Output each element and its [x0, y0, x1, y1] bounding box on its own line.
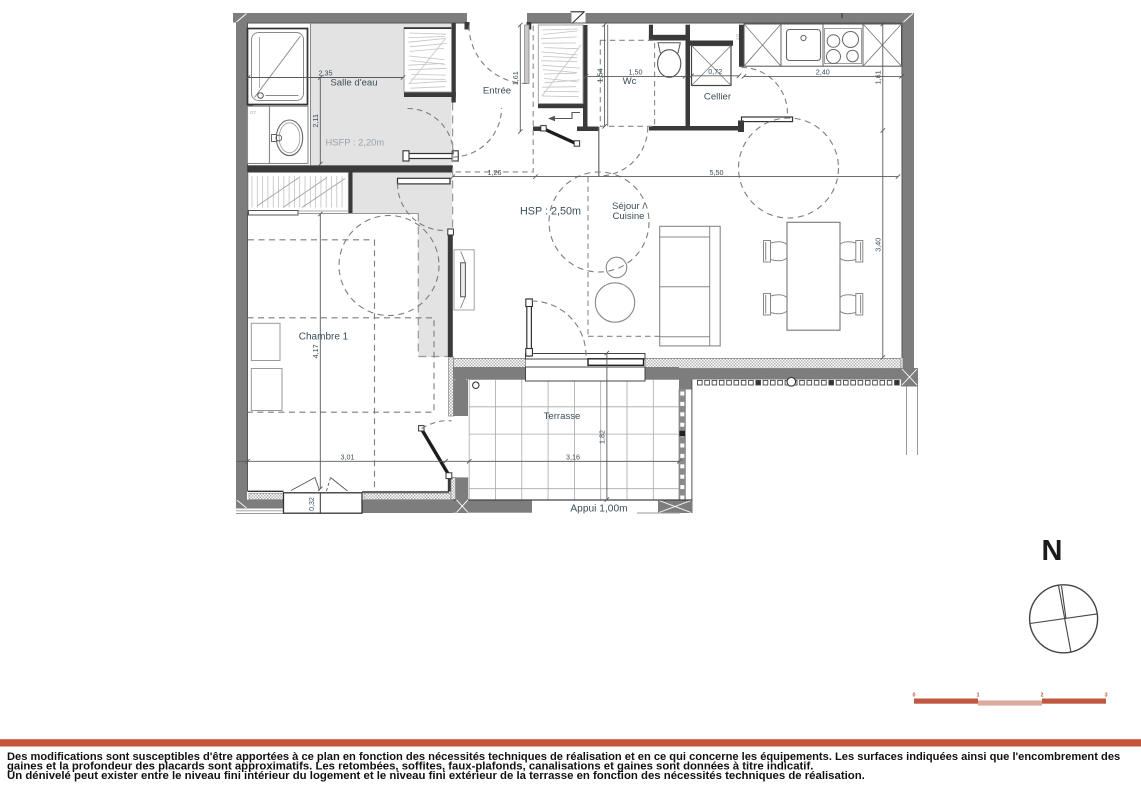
svg-text:2,11: 2,11	[311, 114, 320, 127]
svg-text:1: 1	[976, 693, 979, 699]
svg-text:HSFP : 2,20m: HSFP : 2,20m	[326, 137, 385, 148]
svg-text:1,26: 1,26	[488, 168, 502, 177]
svg-text:0,32: 0,32	[309, 497, 316, 511]
svg-text:GT: GT	[735, 34, 740, 41]
svg-text:2,35: 2,35	[319, 69, 333, 78]
svg-text:Wc: Wc	[623, 76, 637, 87]
svg-text:0,72: 0,72	[708, 67, 722, 76]
svg-text:0: 0	[912, 693, 915, 699]
svg-text:3,01: 3,01	[341, 453, 355, 462]
svg-text:1,54: 1,54	[595, 69, 604, 83]
svg-text:3,40: 3,40	[873, 238, 882, 252]
svg-text:1,61: 1,61	[511, 71, 520, 85]
svg-text:1,61: 1,61	[873, 70, 882, 84]
svg-text:Un dénivelé peut exister entre: Un dénivelé peut exister entre le niveau…	[7, 770, 865, 782]
svg-text:Terrasse: Terrasse	[544, 411, 581, 422]
svg-text:4,17: 4,17	[311, 344, 320, 358]
svg-text:2,40: 2,40	[816, 68, 830, 77]
svg-text:GT: GT	[250, 110, 257, 115]
svg-text:3,16: 3,16	[566, 453, 580, 462]
svg-text:N: N	[1042, 535, 1063, 567]
svg-text:1,82: 1,82	[598, 430, 607, 444]
svg-text:HSP : 2,50m: HSP : 2,50m	[520, 206, 581, 218]
svg-text:Cellier: Cellier	[704, 92, 732, 103]
svg-text:Entrée: Entrée	[483, 86, 511, 97]
svg-text:Appui 1,00m: Appui 1,00m	[570, 504, 627, 515]
svg-text:3: 3	[1104, 693, 1107, 699]
svg-text:2: 2	[1040, 693, 1043, 699]
svg-text:Salle d'eau: Salle d'eau	[330, 78, 377, 89]
svg-text:Cuisine: Cuisine	[613, 211, 645, 222]
svg-text:5,50: 5,50	[710, 168, 724, 177]
svg-text:Chambre 1: Chambre 1	[299, 332, 349, 343]
